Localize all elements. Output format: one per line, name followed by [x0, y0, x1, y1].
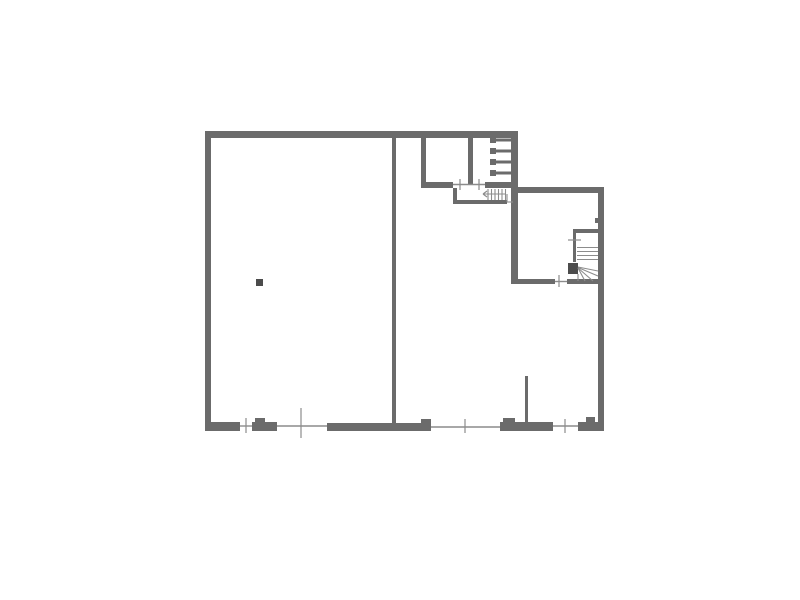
right-room-top-wall — [511, 187, 604, 193]
right-wall-notch — [595, 218, 599, 223]
upper-wall-left — [421, 182, 453, 188]
ladder-rung-3-end — [490, 159, 496, 165]
ladder-rung-2-end — [490, 148, 496, 154]
bottom-wall-d-step — [586, 417, 595, 422]
pillar — [256, 279, 263, 286]
ladder-rung-3 — [496, 161, 512, 164]
ladder-rung-2 — [496, 150, 512, 153]
ladder-rung-4-end — [490, 170, 496, 176]
divider-wall — [392, 138, 396, 426]
left-wall — [205, 138, 211, 430]
ladder-rung-1-end — [490, 137, 496, 143]
top-room-inner-wall — [468, 138, 473, 184]
bottom-wall-b — [327, 423, 431, 431]
bottom-pier — [252, 422, 277, 431]
upper-wall-right — [485, 182, 512, 188]
top-wall — [205, 131, 518, 138]
bottom-wall-a — [205, 422, 240, 431]
small-stair-room-bottom-wall — [453, 200, 507, 204]
newel-post — [568, 263, 578, 274]
bottom-wall-c-bump — [503, 418, 515, 422]
right-room-bottom-wall-b — [567, 279, 604, 284]
bottom-pier-bump — [255, 418, 265, 422]
partition-wall — [525, 376, 528, 430]
stair-enclosure-top-wall — [573, 229, 602, 233]
stair-enclosure-left-wall — [573, 233, 576, 262]
ladder-rung-1 — [496, 139, 512, 142]
floor-plan-drawing — [0, 0, 800, 600]
top-room-left-wall — [421, 138, 426, 186]
ladder-rung-4 — [496, 172, 512, 175]
bottom-wall-b-bump — [421, 419, 431, 423]
right-room-bottom-wall-a — [511, 279, 555, 284]
right-wall — [598, 187, 604, 431]
floor-plan-canvas — [0, 0, 800, 600]
center-vertical-wall — [511, 131, 518, 283]
